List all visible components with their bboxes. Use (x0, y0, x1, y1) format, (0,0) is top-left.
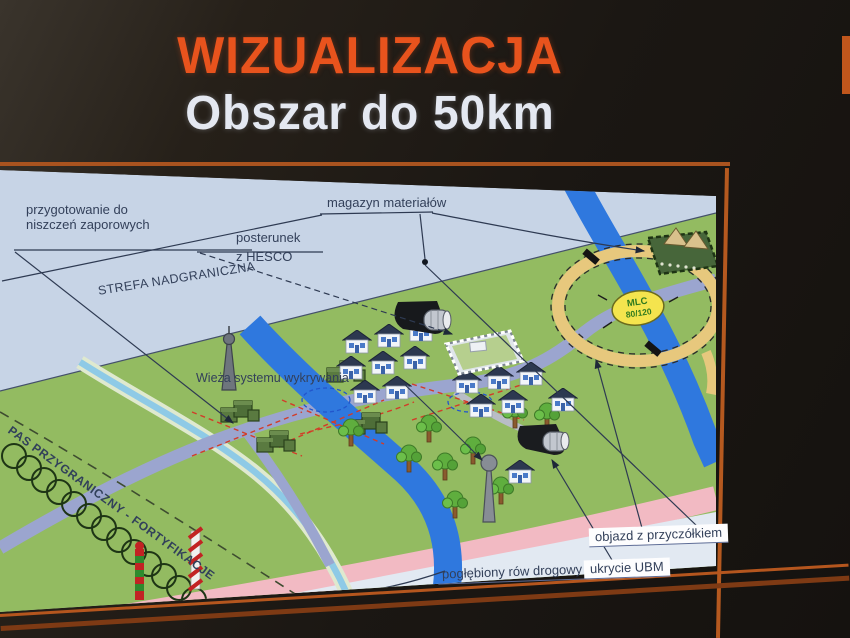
label-materials-depot: magazyn materiałów (327, 196, 446, 211)
slide-photo: { "slide": { "title": "WIZUALIZACJA", "s… (0, 0, 850, 638)
label-detection-tower: Wieża systemu wykrywania (196, 371, 349, 385)
leader-dot (422, 259, 428, 265)
frame-top-line (0, 162, 730, 166)
label-ubm-shelter: ukrycie UBM (584, 558, 670, 580)
slide-subtitle: Obszar do 50km (185, 86, 554, 141)
frame-right-mark (842, 36, 850, 94)
frame-right-line (716, 168, 729, 638)
border-post-striped (135, 542, 144, 601)
slide-title: WIZUALIZACJA (177, 26, 563, 86)
label-demolition-prep: przygotowanie do niszczeń zaporowych (26, 203, 150, 233)
